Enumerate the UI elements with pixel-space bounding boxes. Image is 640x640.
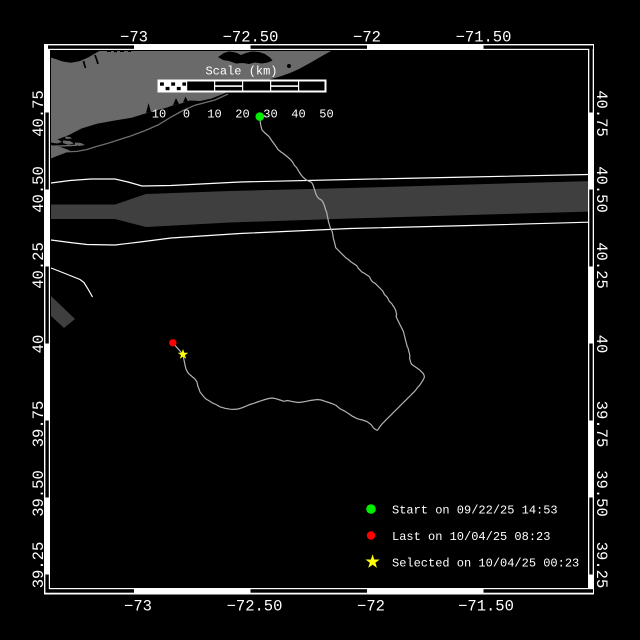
svg-text:10: 10: [207, 108, 221, 122]
svg-text:Start on 09/22/25 14:53: Start on 09/22/25 14:53: [392, 504, 558, 518]
svg-text:20: 20: [235, 108, 249, 122]
svg-text:40.25: 40.25: [592, 242, 610, 289]
svg-text:39.25: 39.25: [592, 542, 610, 589]
svg-text:40: 40: [592, 335, 610, 354]
svg-text:39.25: 39.25: [30, 542, 48, 589]
svg-text:−72.50: −72.50: [223, 29, 279, 47]
svg-text:39.50: 39.50: [30, 470, 48, 517]
svg-text:40.75: 40.75: [30, 90, 48, 137]
svg-text:40: 40: [291, 108, 305, 122]
svg-text:40.75: 40.75: [592, 90, 610, 137]
svg-text:30: 30: [263, 108, 277, 122]
svg-text:0: 0: [183, 108, 190, 122]
svg-text:−72.50: −72.50: [227, 598, 283, 616]
svg-text:Selected on 10/04/25 00:23: Selected on 10/04/25 00:23: [392, 557, 579, 571]
svg-text:39.75: 39.75: [30, 401, 48, 448]
svg-text:39.50: 39.50: [592, 470, 610, 517]
svg-text:10: 10: [152, 108, 166, 122]
svg-text:−73: −73: [120, 29, 148, 47]
svg-text:−71.50: −71.50: [458, 598, 514, 616]
svg-text:39.75: 39.75: [592, 401, 610, 448]
svg-text:Scale (km): Scale (km): [205, 65, 277, 79]
svg-text:40.25: 40.25: [30, 242, 48, 289]
svg-text:Last on 10/04/25 08:23: Last on 10/04/25 08:23: [392, 530, 550, 544]
svg-text:40.50: 40.50: [592, 166, 610, 213]
svg-text:−71.50: −71.50: [456, 29, 512, 47]
svg-text:−72: −72: [353, 29, 381, 47]
svg-text:40: 40: [30, 335, 48, 354]
svg-text:−72: −72: [357, 598, 385, 616]
svg-text:−73: −73: [124, 598, 152, 616]
svg-text:40.50: 40.50: [30, 166, 48, 213]
svg-text:50: 50: [319, 108, 333, 122]
